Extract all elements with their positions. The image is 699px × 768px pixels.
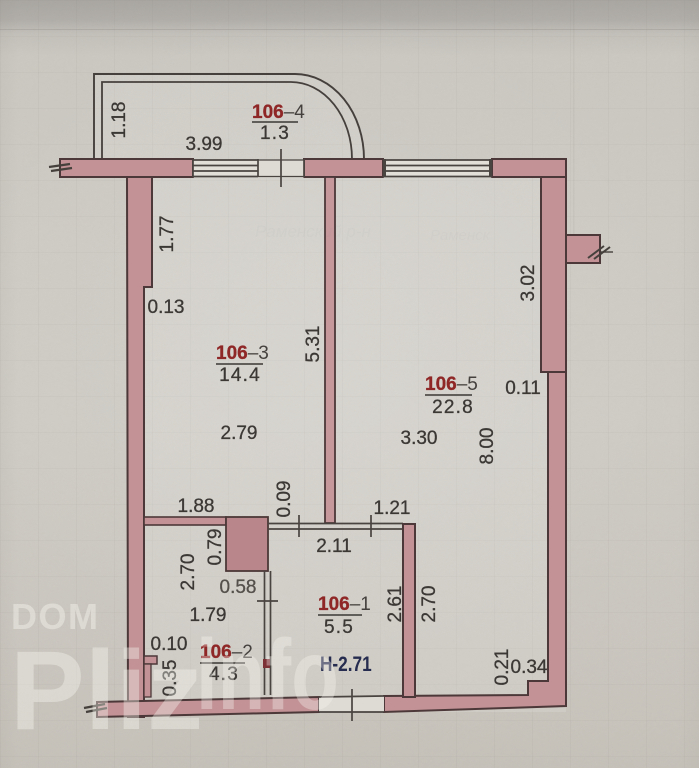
svg-text:info: info bbox=[196, 620, 339, 732]
svg-text:14.4: 14.4 bbox=[219, 365, 261, 386]
svg-text:106–4: 106–4 bbox=[252, 102, 305, 123]
svg-text:0.13: 0.13 bbox=[148, 297, 185, 318]
svg-text:106–1: 106–1 bbox=[318, 594, 371, 615]
svg-text:1.77: 1.77 bbox=[157, 216, 178, 253]
svg-text:22.8: 22.8 bbox=[432, 397, 474, 418]
svg-text:2.70: 2.70 bbox=[419, 586, 440, 623]
svg-text:3.99: 3.99 bbox=[186, 134, 223, 155]
svg-text:5.31: 5.31 bbox=[303, 326, 324, 363]
svg-text:2.70: 2.70 bbox=[178, 554, 199, 591]
svg-text:2.79: 2.79 bbox=[221, 423, 258, 444]
svg-text:1.18: 1.18 bbox=[109, 102, 130, 139]
svg-text:8.00: 8.00 bbox=[477, 428, 498, 465]
svg-text:Раменский р-н: Раменский р-н bbox=[255, 222, 372, 241]
svg-text:106–5: 106–5 bbox=[425, 374, 478, 395]
svg-text:0.11: 0.11 bbox=[505, 378, 541, 399]
svg-text:3.30: 3.30 bbox=[401, 428, 438, 449]
svg-text:0.58: 0.58 bbox=[220, 577, 257, 598]
svg-text:1.21: 1.21 bbox=[374, 498, 411, 519]
svg-text:1.88: 1.88 bbox=[178, 496, 215, 517]
svg-text:0.09: 0.09 bbox=[274, 481, 295, 518]
svg-text:2.11: 2.11 bbox=[316, 536, 352, 557]
svg-text:0.79: 0.79 bbox=[205, 529, 226, 566]
svg-text:Pliz: Pliz bbox=[10, 628, 203, 753]
svg-text:3.02: 3.02 bbox=[518, 265, 539, 302]
svg-text:0.34: 0.34 bbox=[511, 657, 548, 678]
svg-text:106–3: 106–3 bbox=[216, 343, 269, 364]
svg-text:Раменск: Раменск bbox=[430, 227, 491, 244]
svg-text:2.61: 2.61 bbox=[385, 586, 406, 623]
svg-text:1.3: 1.3 bbox=[260, 123, 290, 144]
